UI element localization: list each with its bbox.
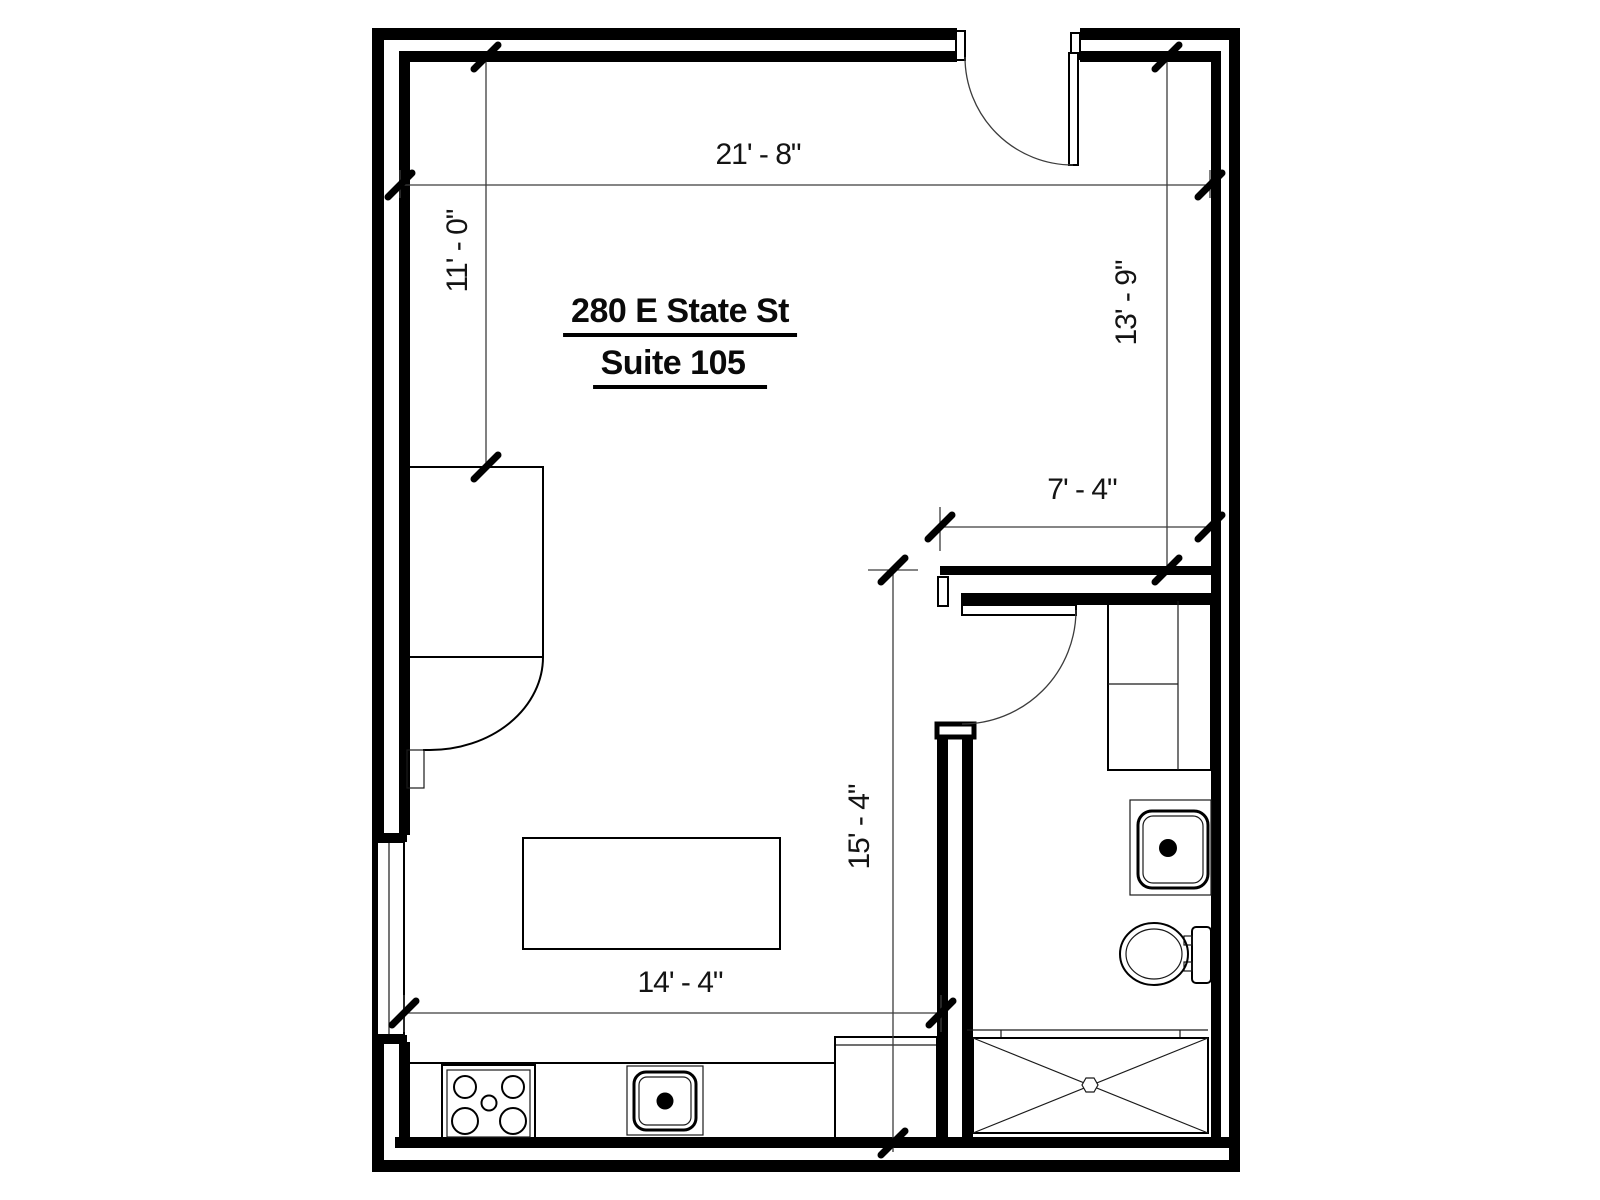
right-wall-inner [1211,51,1221,1148]
left-wall-cap-above-window [372,833,407,842]
partition-wall-right-stroke [962,723,973,1142]
reception-desk-body [406,467,543,657]
dimension-label-lower-right-height: 15' - 4" [843,784,877,869]
window [377,842,404,1035]
dimension-label-upper-left-height: 11' - 0" [441,210,475,293]
bathroom-sink-icon [1130,800,1211,895]
base-cabinet-outline [835,1037,937,1140]
vanity-cabinet [1108,601,1211,770]
suite-number-text: Suite 105 [593,346,768,389]
kitchen-sink-icon [627,1066,703,1135]
cooktop-inner-outline [447,1070,530,1137]
suite-address-text: 280 E State St [563,294,797,337]
reception-desk-curved-front [423,657,543,750]
toilet-tank [1192,927,1211,983]
suite-title: 280 E State St Suite 105 [563,294,797,389]
dimension-label-upper-right-height: 13' - 9" [1110,260,1144,345]
toilet-bowl-inner [1126,929,1182,979]
toilet-bowl [1120,923,1188,985]
window-icon [377,842,404,1035]
burner-top-right [502,1076,524,1098]
top-wall-outer-right [1080,28,1240,40]
left-wall-inner-upper [399,51,410,835]
right-wall-outer [1229,28,1240,1172]
bathroom-door-leaf [962,605,1076,615]
burner-center-knob [482,1096,497,1111]
burner-bottom-right [500,1108,526,1134]
dimension-label-kitchen-width: 14' - 4" [637,966,722,1000]
entry-door-left-jamb [956,31,965,60]
hall-wall-end-jamb [938,577,948,606]
burner-top-left [454,1076,476,1098]
dimension-label-top-width: 21' - 8" [715,138,800,172]
range-cooktop-icon [442,1065,535,1142]
kitchen-sink-drain [657,1093,674,1110]
bathroom-sink-drain [1159,839,1177,857]
bathroom-top-wall [961,593,1211,605]
bathroom [967,601,1211,1133]
floor-plan-canvas: 21' - 8" 11' - 0" 13' - 9" 7' - 4" 15' -… [0,0,1600,1200]
partition-wall-end-cap [937,724,974,737]
reception-desk [406,467,543,788]
floor-plan-drawing [0,0,1600,1200]
kitchen [407,1037,937,1142]
island-table [523,838,780,949]
burner-bottom-left [452,1108,478,1134]
partition-wall-left-stroke [937,723,948,1142]
vanity-outline [1108,601,1211,770]
shower-drain [1082,1078,1098,1092]
dimension-label-bath-hall-width: 7' - 4" [1047,473,1116,507]
toilet-icon [1120,923,1211,985]
bottom-wall-outer [372,1160,1240,1172]
suite-title-row2: Suite 105 [563,346,797,389]
left-wall-inner-lower [399,1042,410,1142]
doors [962,53,1078,724]
top-wall-outer-left [372,28,957,40]
shower-pan-icon [967,1030,1208,1133]
entry-door-leaf [1069,53,1078,165]
bathroom-door-swing-icon [962,610,1076,724]
top-wall-inner-right [1080,51,1211,62]
suite-title-row1: 280 E State St [563,294,797,337]
entry-door-swing-icon [965,57,1073,165]
base-cabinet [835,1037,937,1140]
door-jambs [937,31,1080,737]
